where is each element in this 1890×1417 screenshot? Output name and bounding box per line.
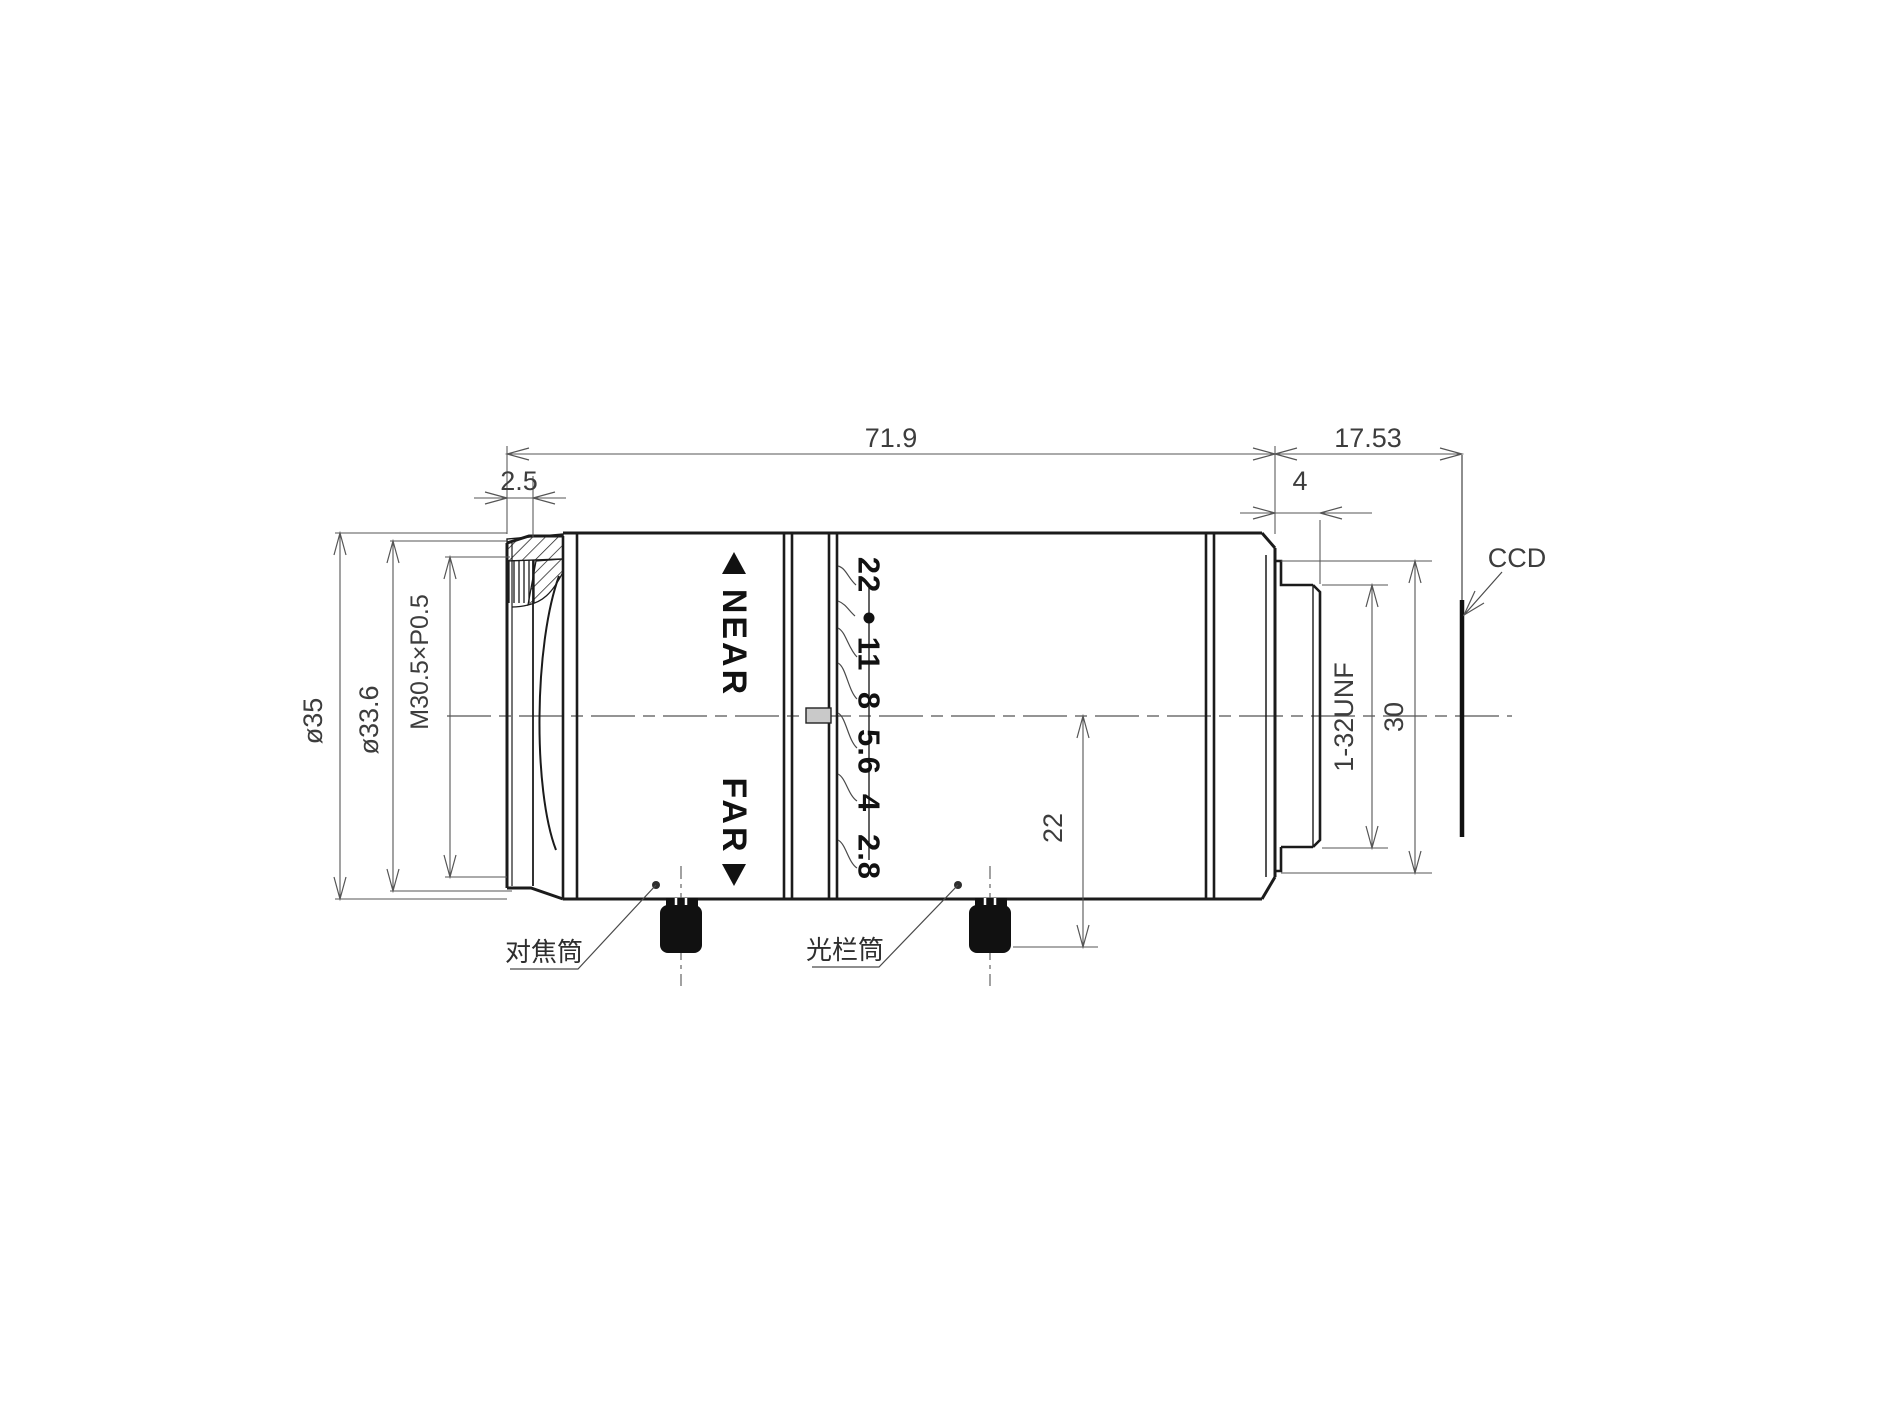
dimension-outer-diameter: ø35 <box>298 533 346 899</box>
aperture-value: 11 <box>852 637 887 672</box>
near-label: NEAR <box>715 589 753 697</box>
ccd-plane: CCD <box>1462 455 1546 837</box>
far-label: FAR <box>715 778 753 855</box>
ccd-label: CCD <box>1488 543 1547 573</box>
drawing-canvas: NEAR FAR 22 11 8 5.6 4 2.8 CCD <box>0 0 1890 1417</box>
dimension-filter-thread: M30.5×P0.5 <box>406 557 456 877</box>
dim-outer-diameter: ø35 <box>298 698 328 745</box>
aperture-barrel-label: 光栏筒 <box>806 935 884 965</box>
dim-back-focal: 17.53 <box>1334 423 1402 453</box>
dimension-thread-length: 4 <box>1240 466 1372 584</box>
dimension-front-inner-diameter: ø33.6 <box>354 541 399 891</box>
focus-lock-knob <box>660 866 702 986</box>
focus-barrel-label: 对焦筒 <box>505 937 583 967</box>
dim-filter-thread: M30.5×P0.5 <box>406 594 434 730</box>
aperture-value: 5.6 <box>852 729 887 775</box>
dimension-front-lip: 2.5 <box>474 466 566 537</box>
dim-mount-step-diameter: 30 <box>1379 702 1409 732</box>
dim-overall-length: 71.9 <box>865 423 918 453</box>
dimension-knob-offset: 22 <box>1013 716 1098 947</box>
dimension-overall-length: 71.9 <box>507 423 1275 534</box>
focus-ring-markings: NEAR FAR <box>715 552 753 886</box>
aperture-dot-mark <box>864 613 875 624</box>
dim-front-lip: 2.5 <box>500 466 538 496</box>
aperture-index-mark <box>806 708 831 723</box>
dim-thread-length: 4 <box>1292 466 1307 496</box>
aperture-value: 22 <box>852 557 887 593</box>
aperture-value: 4 <box>852 794 887 812</box>
dim-front-inner-diameter: ø33.6 <box>354 685 384 754</box>
aperture-value: 2.8 <box>852 834 887 880</box>
aperture-value: 8 <box>852 692 887 710</box>
aperture-scale: 22 11 8 5.6 4 2.8 <box>838 557 887 880</box>
focus-barrel-callout: 对焦筒 <box>505 881 660 969</box>
far-direction-icon <box>722 864 746 886</box>
front-filter-ring <box>507 534 563 886</box>
dimension-back-focal: 17.53 <box>1275 423 1462 460</box>
dim-mount-thread: 1-32UNF <box>1329 662 1359 772</box>
dim-knob-offset: 22 <box>1038 813 1068 843</box>
front-lens-surface-curve <box>539 576 559 850</box>
lens-technical-drawing: NEAR FAR 22 11 8 5.6 4 2.8 CCD <box>0 0 1890 1417</box>
aperture-lock-knob <box>969 866 1011 986</box>
near-direction-icon <box>722 552 746 574</box>
